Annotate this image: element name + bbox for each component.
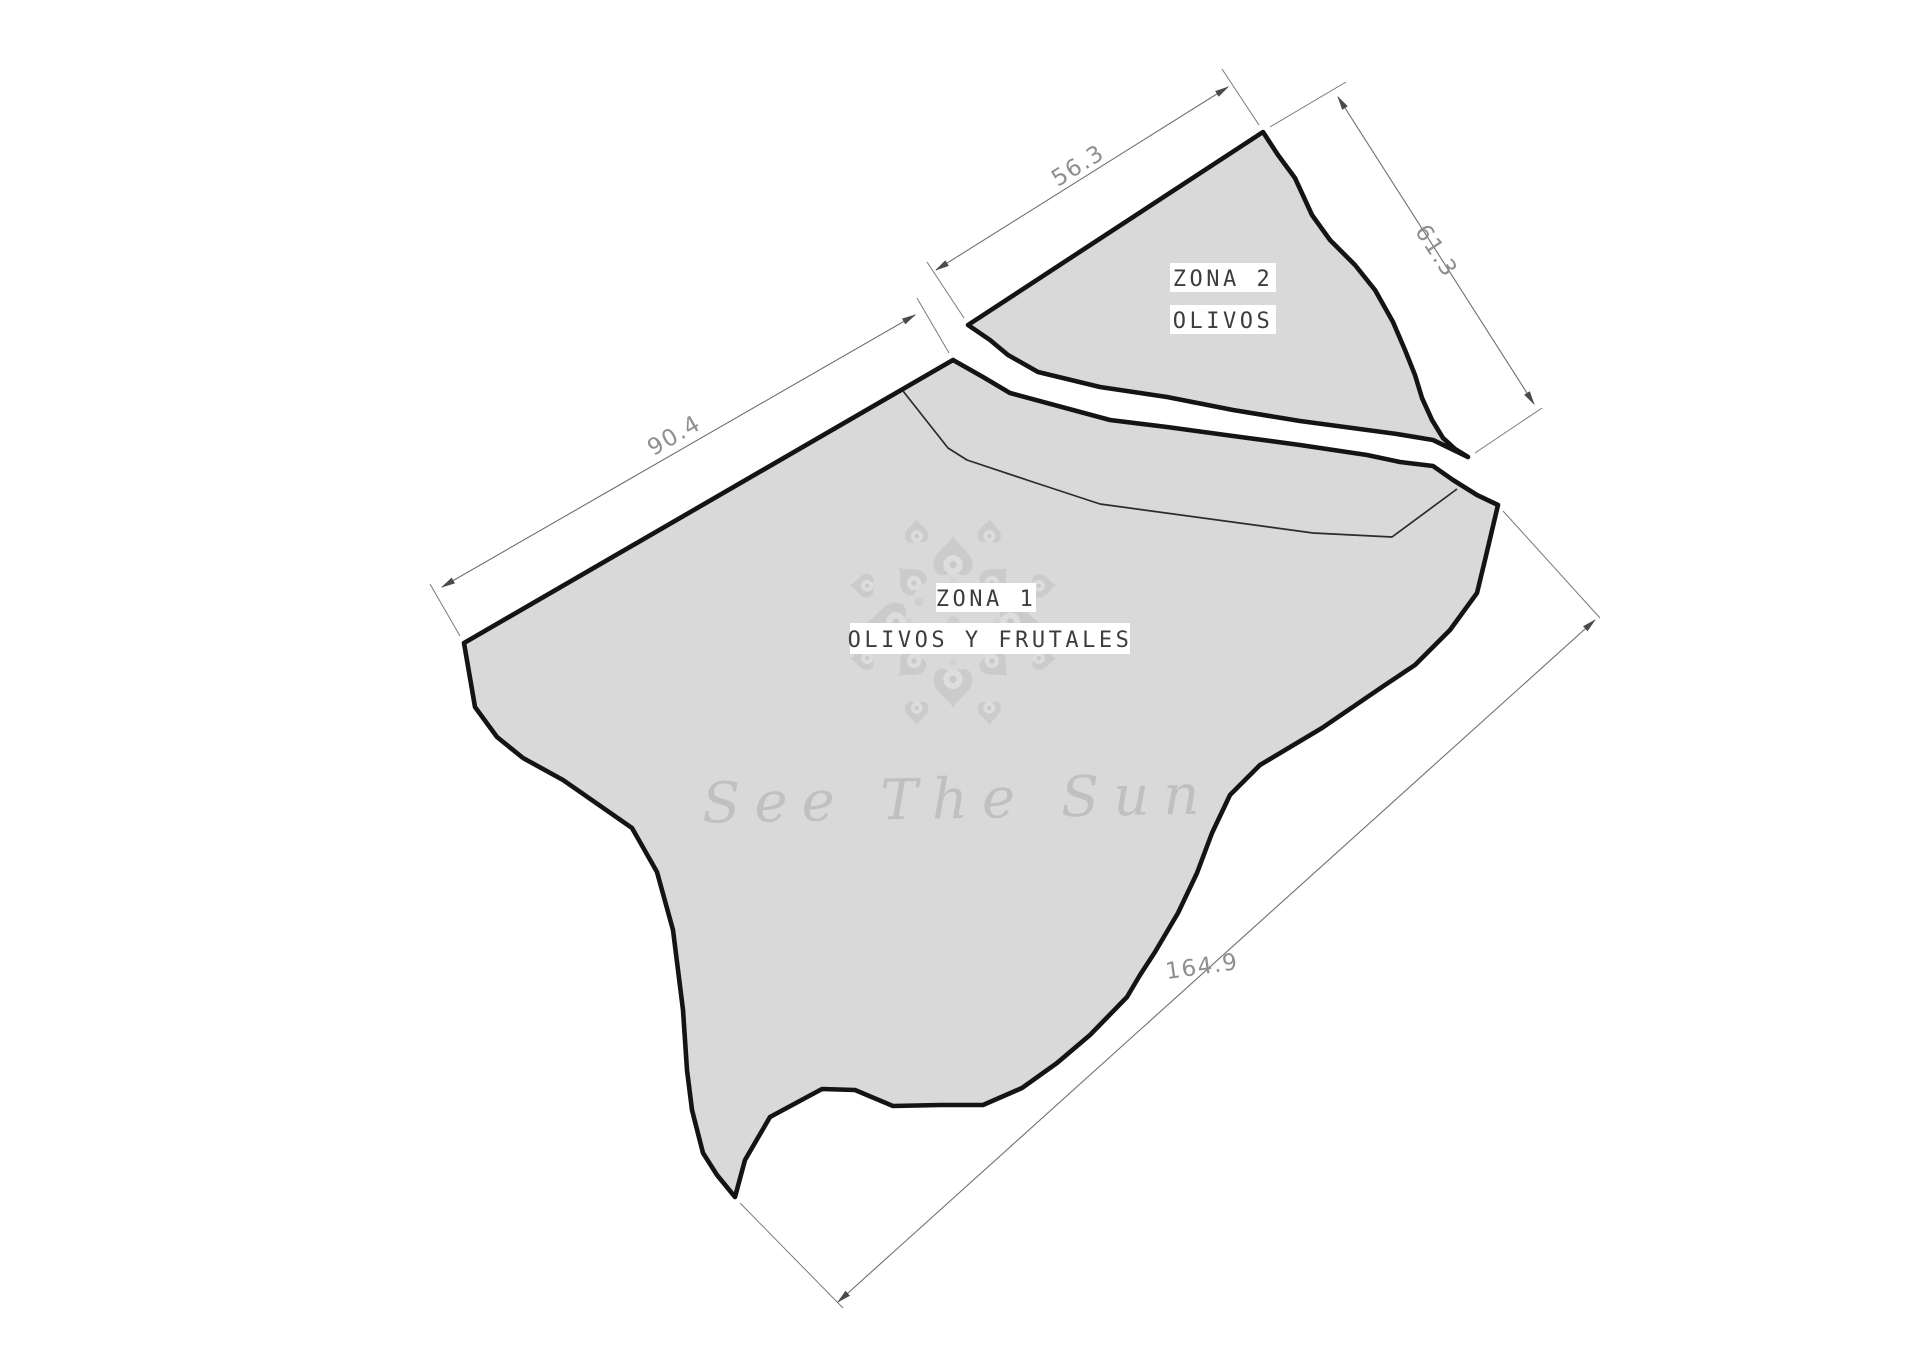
extension-line bbox=[1222, 69, 1259, 125]
extension-line bbox=[430, 584, 460, 636]
site-plan-canvas: 90.4 56.3 61.3 164.9 ZONA 2 OLIVOS ZONA … bbox=[0, 0, 1920, 1347]
dimension-value: 56.3 bbox=[1047, 140, 1109, 192]
zone2-subtitle: OLIVOS bbox=[1173, 309, 1273, 334]
extension-line bbox=[917, 298, 949, 353]
dimension-value: 61.3 bbox=[1409, 220, 1462, 282]
zone1-name: ZONA 1 bbox=[936, 587, 1036, 612]
dimension-value: 164.9 bbox=[1164, 949, 1240, 985]
site-plan: 90.4 56.3 61.3 164.9 ZONA 2 OLIVOS ZONA … bbox=[0, 0, 1920, 1347]
extension-line bbox=[740, 1203, 843, 1308]
zone2-name: ZONA 2 bbox=[1173, 267, 1273, 292]
extension-line bbox=[927, 262, 964, 318]
watermark-text: See The Sun bbox=[701, 763, 1213, 837]
extension-line bbox=[1475, 408, 1542, 453]
extension-line bbox=[1503, 511, 1600, 618]
extension-line bbox=[1270, 82, 1346, 127]
zone1-subtitle: OLIVOS Y FRUTALES bbox=[848, 628, 1133, 653]
